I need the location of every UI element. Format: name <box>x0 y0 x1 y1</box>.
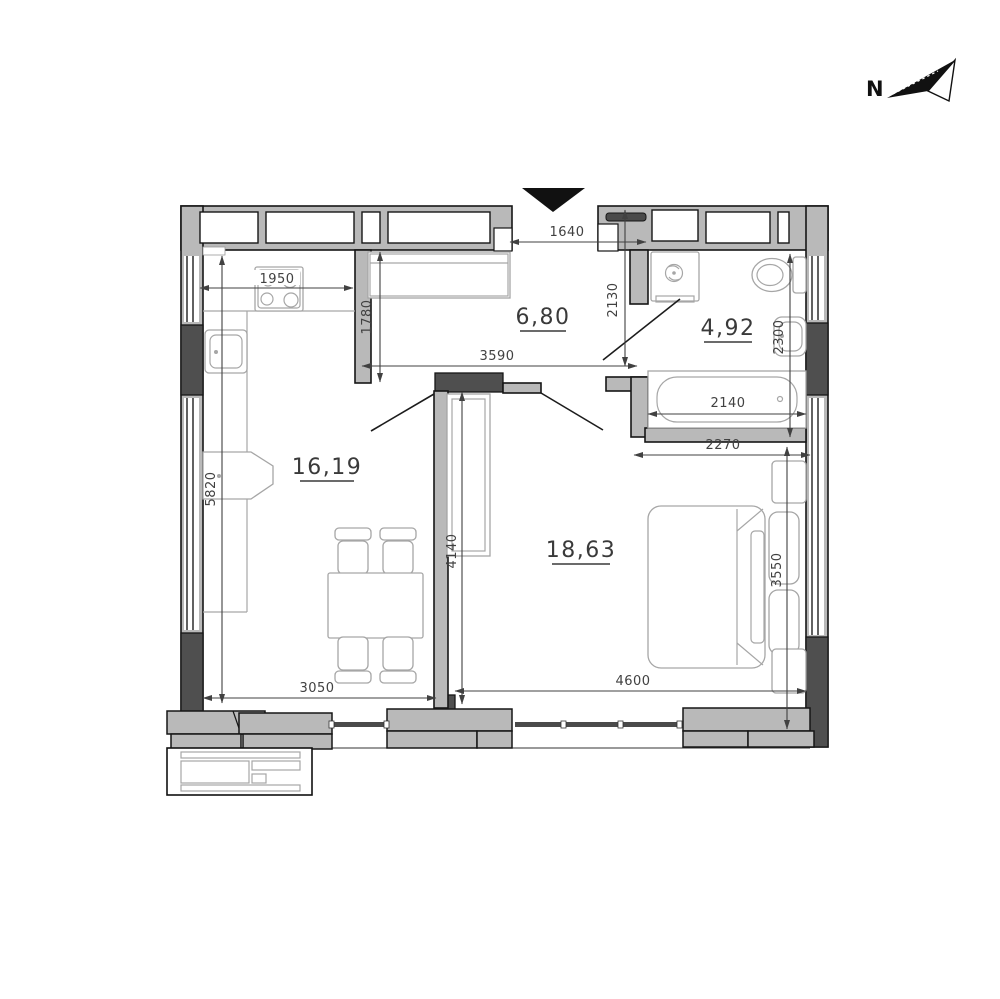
toilet <box>752 257 806 293</box>
chair <box>335 671 371 683</box>
ac-unit <box>167 748 312 795</box>
chair <box>380 528 416 540</box>
balcony-slabs <box>167 708 814 749</box>
bed <box>648 506 765 668</box>
bathroom-wall-upper <box>630 250 648 304</box>
floor-plan: 1950 1640 1780 2130 3590 5820 4140 2270 <box>0 0 1000 999</box>
dim-kitchen-run: 1950 <box>200 270 353 288</box>
dim-label-3590: 3590 <box>479 349 514 364</box>
dim-bedroom-width: 4600 <box>455 674 806 691</box>
north-label: N <box>866 77 884 101</box>
entry-jamb-right <box>598 224 618 251</box>
hallway-wardrobe <box>368 252 510 298</box>
chair <box>338 637 368 670</box>
room-area-hallway: 6,80 <box>516 305 571 330</box>
dim-label-3050: 3050 <box>299 681 334 696</box>
dining-table <box>328 573 423 638</box>
dim-label-2130: 2130 <box>606 282 621 317</box>
floor-plan-page: 1950 1640 1780 2130 3590 5820 4140 2270 <box>0 0 1000 999</box>
chair <box>383 637 413 670</box>
window-sill-cap <box>203 247 225 255</box>
kitchen-fixtures <box>203 267 355 612</box>
dim-label-4140: 4140 <box>445 533 460 568</box>
chair <box>338 541 368 574</box>
chair <box>380 671 416 683</box>
room-area-bedroom: 18,63 <box>546 538 616 563</box>
dim-hall-width: 3590 <box>362 349 637 366</box>
nightstand <box>772 461 806 503</box>
washing-machine <box>651 252 699 302</box>
dim-label-1950: 1950 <box>259 272 294 287</box>
dim-label-2270: 2270 <box>705 438 740 453</box>
bedroom-door-wall-strip <box>503 383 541 393</box>
living-room-door <box>371 394 434 431</box>
dining-set <box>328 528 423 683</box>
dim-label-3550: 3550 <box>770 552 785 587</box>
vent-slot <box>606 213 646 221</box>
pillow <box>769 590 799 654</box>
entry-jamb-left <box>494 228 512 251</box>
entrance-arrow <box>522 188 585 212</box>
dim-label-5820: 5820 <box>204 471 219 506</box>
dim-label-2140: 2140 <box>710 396 745 411</box>
bedroom-door <box>541 393 603 430</box>
partition-shelf <box>447 394 490 556</box>
dim-label-4600: 4600 <box>615 674 650 689</box>
north-arrow: N <box>866 60 955 101</box>
nightstand <box>772 649 806 693</box>
dim-label-1780: 1780 <box>360 299 375 334</box>
kitchen-sink <box>205 330 247 373</box>
chair <box>335 528 371 540</box>
dim-label-1640: 1640 <box>549 225 584 240</box>
dim-label-2300: 2300 <box>772 319 787 354</box>
room-area-living: 16,19 <box>292 455 362 480</box>
chair <box>383 541 413 574</box>
room-area-bathroom: 4,92 <box>701 316 756 341</box>
